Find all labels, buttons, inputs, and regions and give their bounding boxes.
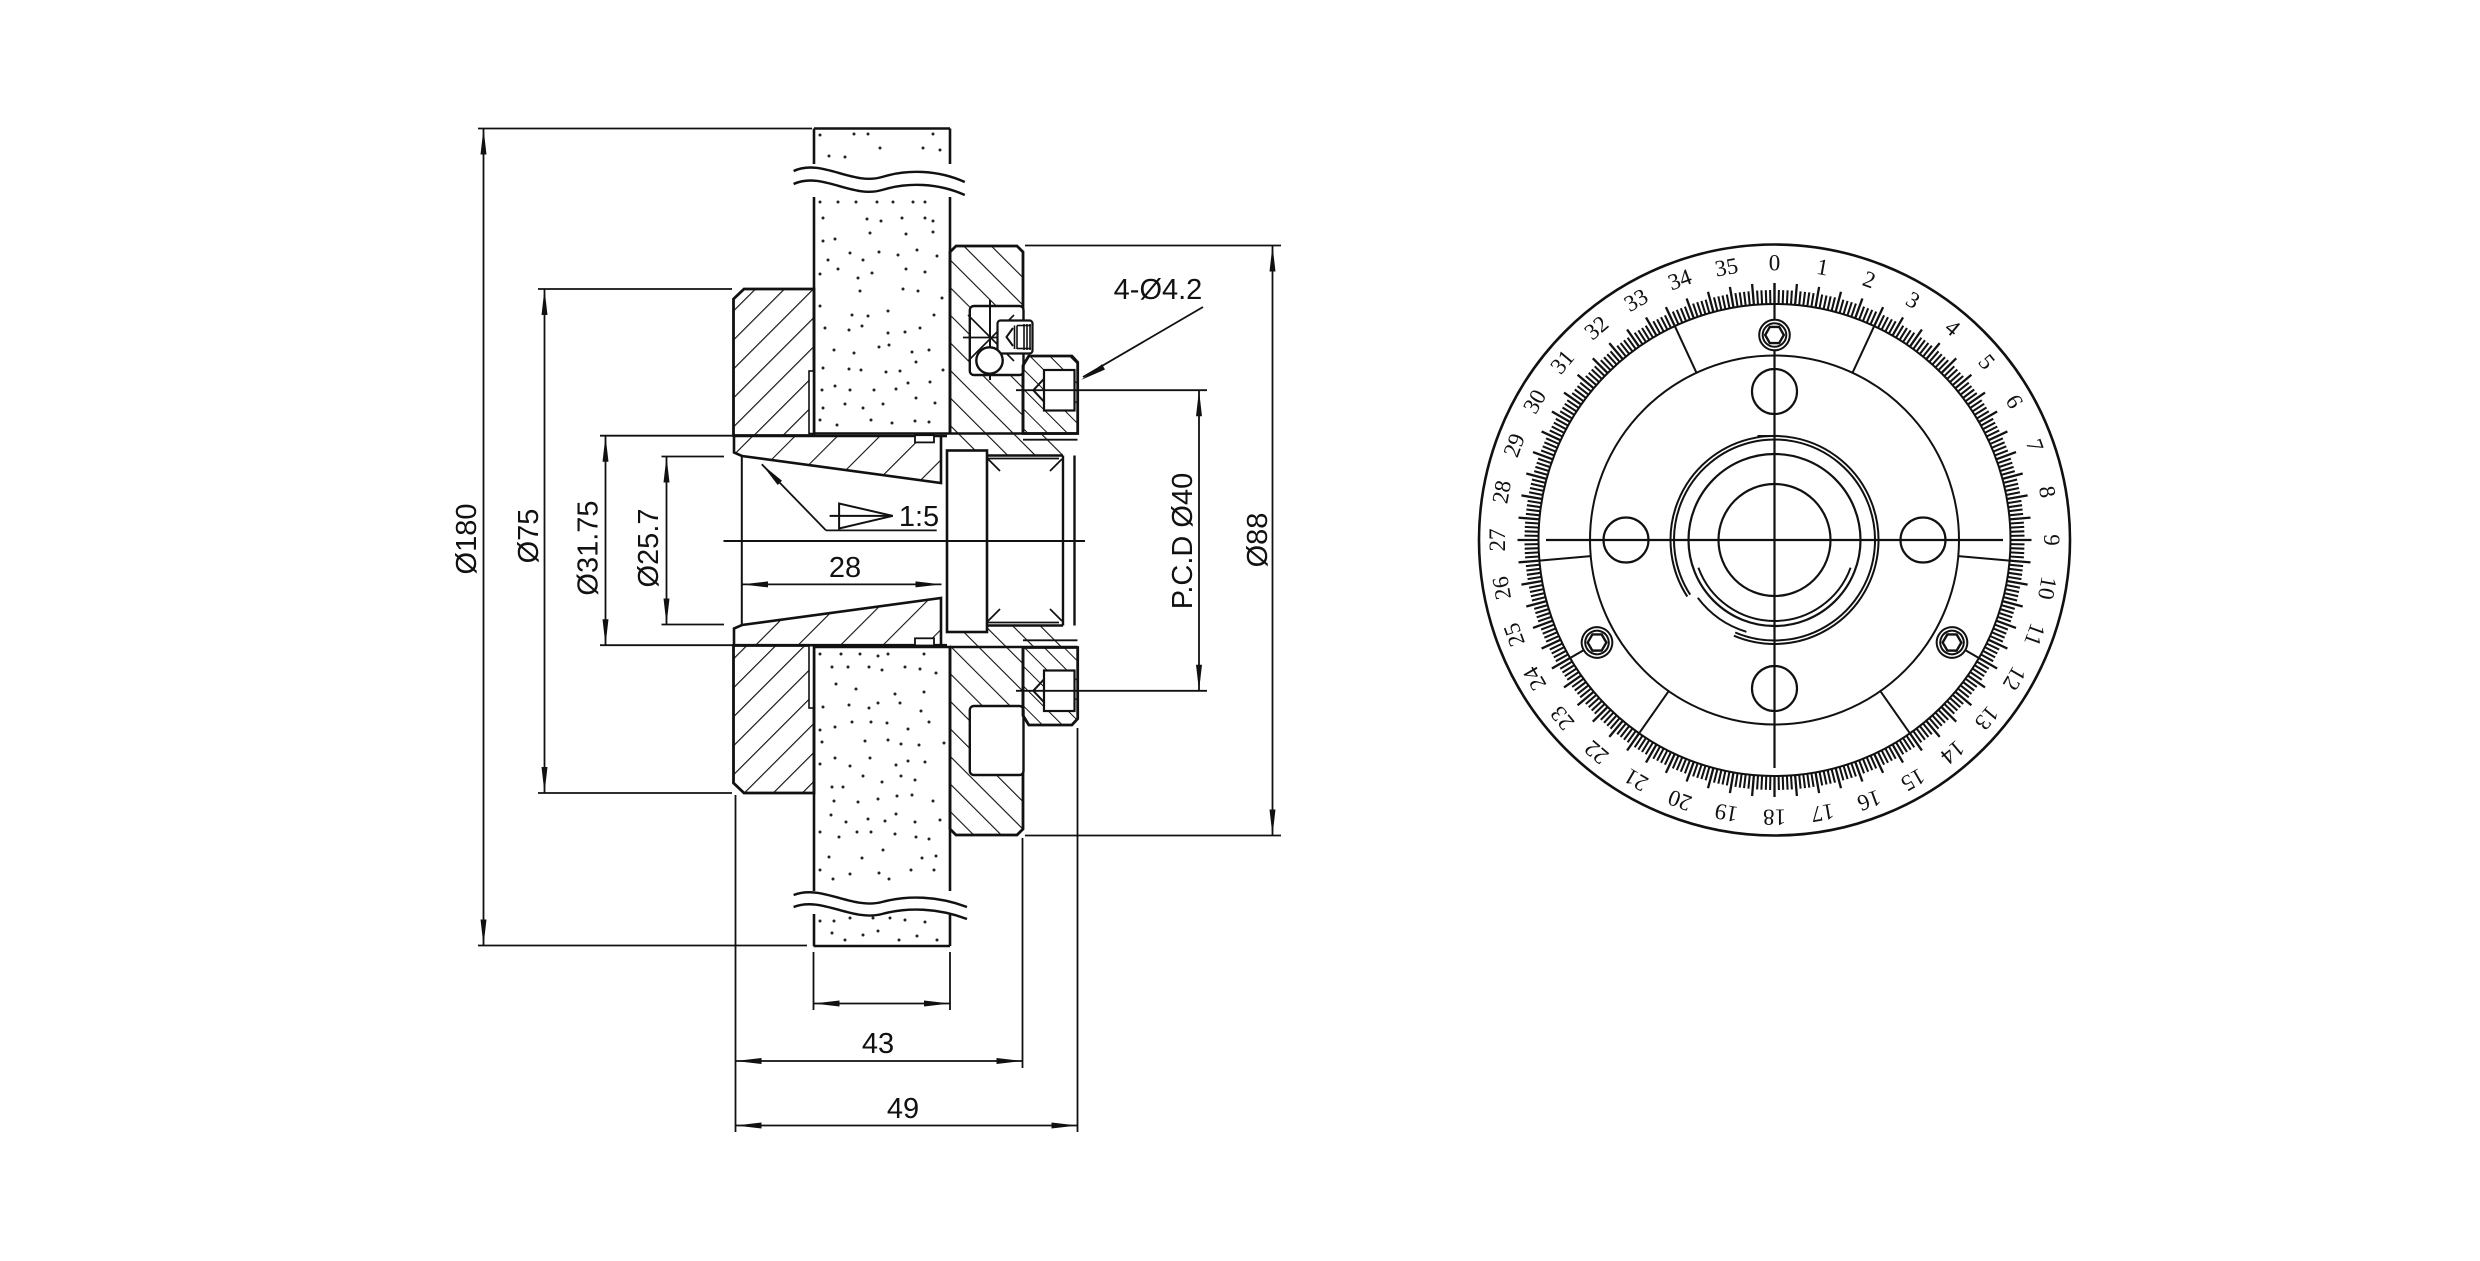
svg-text:1:5: 1:5 — [899, 501, 939, 533]
svg-text:35: 35 — [1713, 253, 1740, 282]
svg-text:49: 49 — [887, 1093, 919, 1125]
svg-text:26: 26 — [1487, 575, 1516, 602]
svg-text:10: 10 — [2033, 575, 2062, 602]
svg-text:19: 19 — [1713, 798, 1740, 827]
svg-text:P.C.D Ø40: P.C.D Ø40 — [1167, 473, 1199, 609]
svg-text:9: 9 — [2039, 534, 2064, 546]
svg-text:18: 18 — [1763, 805, 1786, 830]
svg-text:17: 17 — [1809, 798, 1836, 827]
svg-text:Ø75: Ø75 — [513, 509, 545, 564]
svg-text:Ø88: Ø88 — [1242, 513, 1274, 568]
svg-text:43: 43 — [862, 1028, 894, 1060]
svg-text:27: 27 — [1485, 529, 1510, 552]
svg-text:Ø25.7: Ø25.7 — [633, 509, 665, 588]
svg-text:Ø31.75: Ø31.75 — [573, 500, 605, 595]
svg-text:4-Ø4.2: 4-Ø4.2 — [1114, 274, 1203, 306]
svg-text:Ø180: Ø180 — [451, 504, 483, 575]
svg-text:0: 0 — [1769, 251, 1781, 276]
svg-text:28: 28 — [829, 552, 861, 584]
svg-text:28: 28 — [1487, 478, 1516, 505]
